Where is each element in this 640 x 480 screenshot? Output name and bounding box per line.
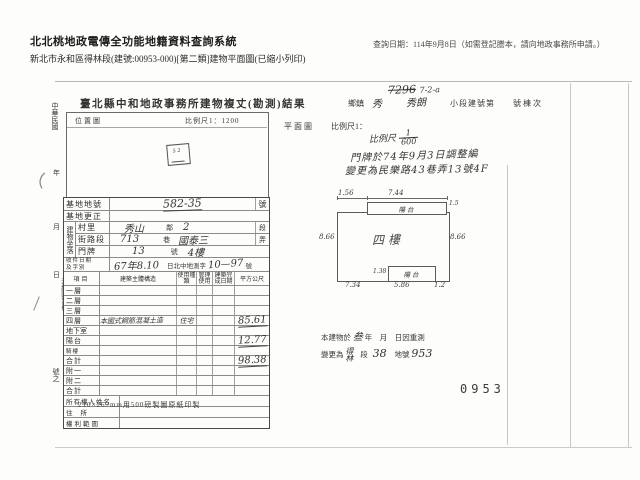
situs-row-door: 門牌 13 號 4樓: [76, 246, 269, 257]
floor-structure: [100, 306, 176, 315]
building-no-label: 號棟次: [513, 98, 543, 109]
paper-spec-note: 210×267mm用500磅製圖原紙印製: [78, 400, 200, 410]
floor-row-label: 二層: [64, 296, 100, 305]
document-subtitle: 新北市永和區得林段(建號:00953-000)[第二類]建物平面圖(已縮小列印): [30, 52, 305, 65]
floor-row-label: 地下室: [64, 326, 100, 335]
scan-bottom-edge: [55, 447, 632, 448]
floor-row-label: 騎樓: [64, 346, 100, 355]
survey-table: 基地地號 582-35 號 基地更正 建物坐落 村里 秀山 鄰 2: [63, 197, 270, 429]
floor-area: [234, 286, 269, 295]
hand-scale-prefix: 比例尺: [369, 134, 397, 145]
dim-right: 8.66: [450, 233, 466, 241]
paper-edge-line-outer: [628, 83, 629, 447]
dim-top-right: 1.5: [449, 200, 459, 207]
floor-row-label: 一層: [64, 286, 100, 295]
resurvey-prefix: 本建物於: [321, 333, 351, 342]
floor-row: 騎樓: [64, 346, 269, 356]
floor-area: [234, 386, 269, 395]
survey-result-title: 臺北縣中和地政事務所建物複丈(勘測)結果: [80, 96, 306, 111]
resurvey-seg-label: 段: [360, 350, 368, 359]
floor-date: [212, 376, 234, 385]
floor-row-label: 三層: [64, 306, 100, 315]
rights-scope-row: 權利範圍: [64, 418, 269, 428]
floor-date: [212, 326, 234, 335]
township-label: 鄉鎮: [348, 98, 364, 109]
floor-use: [176, 296, 196, 305]
resurvey-line2-prefix: 變更為: [321, 350, 344, 359]
base-parcel-label: 基地地號: [64, 198, 110, 210]
location-map-label: 位置圖: [75, 116, 102, 126]
floor-area: [234, 296, 269, 305]
street-value-cell: 713 巷 國泰三: [110, 234, 255, 245]
situs-group-label: 建物坐落: [64, 222, 76, 257]
floor-row-label: 陽台: [64, 336, 100, 345]
structure-value: 本國式鋼筋混凝土造: [100, 315, 163, 326]
resurvey-hand-year: 叁: [353, 332, 363, 343]
floor-date: [212, 306, 234, 315]
floor-mgmt: [196, 286, 212, 295]
subsection-label: 小段建號第: [450, 98, 495, 109]
door-no-label: 號: [171, 247, 178, 257]
table-row: 基地地號 582-35 號: [64, 198, 269, 211]
floor-plan-scale-label: 比例尺1：: [331, 121, 367, 132]
col-use-type: 使用種類: [176, 272, 196, 285]
floor-row: 二層: [64, 296, 269, 306]
paper-edge-line: [570, 83, 571, 447]
scan-top-edge: [55, 81, 632, 82]
door-floor: 4樓: [188, 244, 204, 259]
resurvey-note: 本建物於 叁 年 月 日因重測 變更為 得林 段 38 地號 953: [321, 328, 432, 363]
base-parcel-value-cell: 582-35: [110, 198, 255, 210]
dim-tick: [367, 196, 368, 200]
resurvey-mid: 年 月 日因重測: [365, 333, 425, 342]
situs-row-street: 街路段 713 巷 國泰三 弄: [76, 234, 269, 246]
floor-area: [234, 366, 269, 375]
col-structure: 建築主體構造: [100, 272, 176, 285]
floor-date: [212, 316, 234, 325]
village-label: 村里: [76, 222, 110, 233]
receipt-value-cell: 67年8.10 日北中地測字 10—97 號: [110, 258, 269, 271]
margin-roc-label: 中華民國: [51, 102, 58, 130]
floor-area: 12.77: [234, 336, 269, 345]
floor-date: [212, 336, 234, 345]
floor-mgmt: [196, 376, 212, 385]
village-value: 秀山: [124, 220, 144, 235]
floor-row-label: 合計: [64, 356, 100, 365]
floor-date: [212, 296, 234, 305]
col-management: 管理使用: [196, 272, 212, 285]
floor-date: [212, 286, 234, 295]
floor-structure: [100, 296, 176, 305]
dim-top-left: 1.56: [338, 189, 354, 197]
resurvey-line-2: 變更為 得林 段 38 地號 953: [321, 347, 432, 363]
dim-top: 7.44: [388, 189, 404, 197]
col-sqm: 平方公尺: [234, 272, 269, 285]
address-note-2: 變更為民樂路43巷弄13號4F: [345, 160, 489, 178]
floor-row-label: 附一: [64, 366, 100, 375]
receipt-doc-number: 10—97: [208, 258, 244, 271]
rights-scope-label: 權利範圍: [64, 418, 120, 428]
rights-scope-value: [120, 418, 269, 428]
base-parcel-suffix: 號: [255, 198, 269, 210]
floor-row-label: 附二: [64, 376, 100, 385]
floor-area: 85.61: [234, 316, 269, 325]
resurvey-line-1: 本建物於 叁 年 月 日因重測: [321, 328, 432, 343]
floor-mgmt: [196, 306, 212, 315]
parcel-mark: 5 2: [172, 148, 180, 155]
lane-label: 巷: [163, 235, 170, 245]
floor-use: [176, 306, 196, 315]
floor-use: [176, 356, 196, 365]
margin-year-label: 年: [53, 168, 60, 178]
floor-row: 合計: [64, 386, 269, 396]
floor-structure: [100, 336, 176, 345]
section-suffix: 段: [255, 222, 269, 233]
hand-scale: 比例尺 1 600: [369, 129, 419, 149]
location-map-divider: [67, 127, 267, 128]
col-item: 項目: [64, 272, 100, 285]
door-suffix: [255, 246, 269, 257]
floor-use: [176, 326, 196, 335]
dim-tick: [447, 196, 448, 200]
receipt-date: 67年8.10: [114, 256, 159, 273]
door-number: 13: [132, 246, 145, 257]
floor-row: 三層: [64, 306, 269, 316]
floor-structure: 本國式鋼筋混凝土造: [100, 316, 176, 325]
top-dim-line: [337, 198, 448, 199]
base-parcel-value: 582-35: [163, 196, 202, 211]
bottom-balcony-label: 陽台: [404, 269, 421, 279]
street-value-1: 713: [120, 234, 139, 245]
floor-structure: [100, 286, 176, 295]
top-balcony: 陽台: [367, 202, 447, 215]
dim-left: 8.66: [319, 233, 335, 241]
floor-plan-label: 平面圖: [284, 121, 314, 132]
floor-row-label: 四層: [64, 316, 100, 325]
floor-use: [176, 336, 196, 345]
floor-mgmt: [196, 326, 212, 335]
floor-mgmt: [196, 346, 212, 355]
door-label: 門牌: [76, 246, 110, 257]
street-label: 街路段: [76, 234, 110, 245]
floor-row-label: 合計: [64, 386, 100, 395]
dim-bottom-right: 1.2: [434, 281, 445, 289]
floor-row: 附一: [64, 366, 269, 376]
floor-row-balcony: 陽台 12.77: [64, 336, 269, 346]
col-completion-date: 建築完成日期: [212, 272, 234, 285]
floor-plan-drawing: 1.56 7.44 1.5 陽台 四樓 8.66 8.66 陽台 1.38 7.…: [330, 188, 470, 288]
door-value-cell: 13 號 4樓: [110, 246, 255, 257]
land-registry-scan-page: 北北桃地政電傳全功能地籍資料查詢系統 查詢日期：114年9月8日（如需登記謄本，…: [0, 0, 640, 480]
dim-balcony-bottom-left: 1.38: [373, 268, 386, 275]
floor-mgmt: [196, 316, 212, 325]
receipt-label: 收件日期 及字別: [64, 258, 110, 271]
dim-bottom-left: 7.34: [345, 281, 361, 289]
township-value: 秀: [372, 95, 382, 110]
building-number-stamp: 0953: [460, 382, 505, 396]
floor-row: 地下室: [64, 326, 269, 336]
alley-suffix: 弄: [255, 234, 269, 245]
receipt-suffix: 號: [245, 260, 252, 270]
floor-structure: [100, 356, 176, 365]
floor-mgmt: [196, 366, 212, 375]
resurvey-hand-parcel: 953: [411, 347, 432, 360]
parcel-sketch: 5 2: [166, 143, 191, 166]
floor-date: [212, 386, 234, 395]
floor-mgmt: [196, 296, 212, 305]
base-fix-label: 基地更正: [64, 211, 110, 221]
floor-area: [234, 376, 269, 385]
floor-row: 一層: [64, 286, 269, 296]
bottom-balcony: 陽台: [388, 266, 436, 282]
margin-month-label: 月: [53, 222, 60, 232]
hand-scale-denominator: 600: [399, 137, 419, 147]
situs-row-village: 村里 秀山 鄰 2 段: [76, 222, 269, 234]
top-balcony-label: 陽台: [399, 204, 416, 214]
floor-structure: [100, 376, 176, 385]
floor-structure: [100, 366, 176, 375]
system-title: 北北桃地政電傳全功能地籍資料查詢系統: [30, 33, 237, 49]
floor-mgmt: [196, 336, 212, 345]
section-value: 秀朗: [406, 93, 427, 109]
receipt-row: 收件日期 及字別 67年8.10 日北中地測字 10—97 號: [64, 258, 269, 272]
floor-structure: [100, 326, 176, 335]
floor-area: 98.38: [234, 356, 269, 365]
use-value: 住宅: [180, 316, 194, 326]
floor-use: 住宅: [176, 316, 196, 325]
resurvey-hand-no: 38: [373, 347, 387, 360]
floor-mgmt: [196, 386, 212, 395]
floor-use: [176, 386, 196, 395]
floor-row-total: 合計 98.38: [64, 356, 269, 366]
hand-scale-fraction: 1 600: [398, 129, 418, 147]
floor-use: [176, 286, 196, 295]
neighborhood-label: 鄰: [166, 223, 173, 233]
table-header-row: 項目 建築主體構造 使用種類 管理使用 建築完成日期 平方公尺: [64, 272, 269, 286]
floor-date: [212, 366, 234, 375]
floor-date: [212, 346, 234, 355]
paper-fold-line: [507, 165, 508, 445]
floor-structure: [100, 346, 176, 355]
situs-block: 建物坐落 村里 秀山 鄰 2 段 街路段 713 巷 國泰三: [64, 222, 269, 258]
floor-label: 四樓: [372, 230, 405, 248]
floor-structure: [100, 386, 176, 395]
margin-number-label: 號之: [52, 368, 59, 382]
location-map-scale: 比例尺1：1200: [185, 116, 240, 126]
floor-use: [176, 346, 196, 355]
floor-use: [176, 376, 196, 385]
resurvey-hand-section: 得林: [345, 348, 354, 363]
floor-use: [176, 366, 196, 375]
dim-bottom-mid: 5.86: [394, 281, 410, 289]
table-row: 基地更正: [64, 211, 269, 222]
floor-mgmt: [196, 356, 212, 365]
query-date: 查詢日期：114年9月8日（如需登記謄本，請向地政事務所申請。）: [373, 39, 605, 50]
handwritten-stroke-mark: [33, 296, 40, 310]
floor-row-4f: 四層 本國式鋼筋混凝土造 住宅 85.61: [64, 316, 269, 326]
receipt-doc-type: 日北中地測字: [167, 260, 206, 270]
location-map-box: 位置圖 比例尺1：1200 5 2: [66, 112, 269, 199]
floor-date: [212, 356, 234, 365]
resurvey-parcel-label: 地號: [395, 350, 410, 359]
floor-row: 附二: [64, 376, 269, 386]
parcel-inner-line: [172, 160, 185, 162]
handwritten-bracket-mark: （: [26, 165, 47, 193]
receipt-label-2: 及字別: [66, 265, 86, 271]
